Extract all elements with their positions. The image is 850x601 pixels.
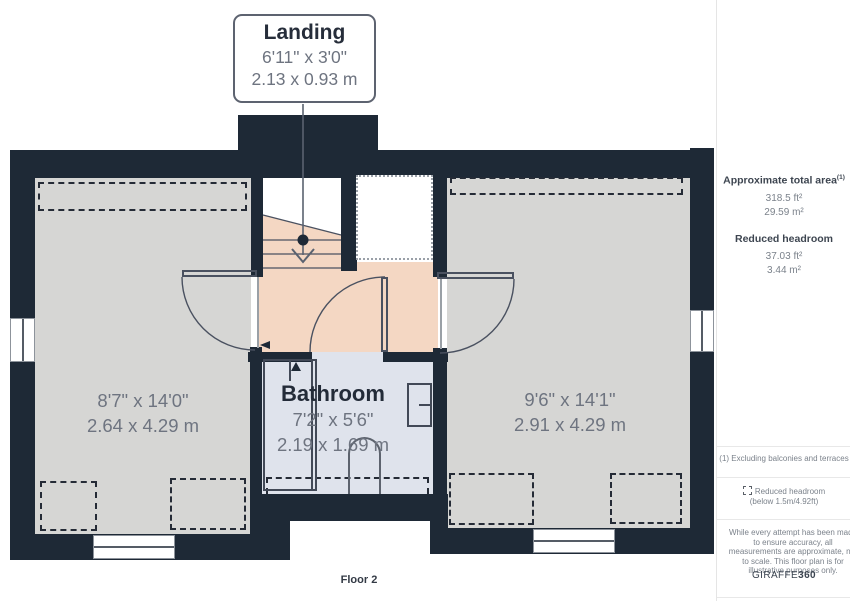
room-right-label: 9'6" x 14'1" 2.91 x 4.29 m [470, 387, 670, 437]
reduced-headroom-metric: 3.44 m² [717, 264, 850, 278]
sidebar-divider [717, 446, 850, 447]
landing-callout-title: Landing [235, 20, 374, 46]
info-sidebar: Approximate total area(1) 318.5 ft² 29.5… [716, 0, 850, 601]
bathroom-label: Bathroom 7'2" x 5'6" 2.19 x 1.69 m [238, 381, 428, 457]
footnote-text: (1) Excluding balconies and terraces [717, 454, 850, 464]
giraffe360-logo: GIRAFFE360 [717, 570, 850, 581]
door-arc-left-room [182, 277, 255, 350]
bathroom-metric: 2.19 x 1.69 m [238, 432, 428, 457]
reduced-headroom-title: Reduced headroom [717, 233, 850, 245]
door-swing-marker [291, 362, 301, 371]
total-area-label: Approximate total area [723, 175, 837, 187]
floorplan-page: Landing 6'11" x 3'0" 2.13 x 0.93 m 8'7" … [0, 0, 850, 601]
disclaimer-text: While every attempt has been made to ens… [717, 528, 850, 576]
sidebar-divider [717, 477, 850, 478]
floor-label: Floor 2 [284, 574, 434, 586]
landing-callout-metric: 2.13 x 0.93 m [235, 68, 374, 90]
total-area-section: Approximate total area(1) 318.5 ft² 29.5… [717, 174, 850, 278]
room-left-metric: 2.64 x 4.29 m [43, 413, 243, 438]
bathroom-name: Bathroom [238, 381, 428, 407]
sidebar-divider [717, 597, 850, 598]
room-right-imperial: 9'6" x 14'1" [470, 387, 670, 412]
door-swing-marker [260, 341, 270, 349]
brand-name: GIRAFFE [752, 570, 798, 581]
total-area-imperial: 318.5 ft² [717, 192, 850, 206]
reduced-headroom-imperial: 37.03 ft² [717, 250, 850, 264]
legend-reduced-headroom: Reduced headroom (below 1.5m/4.92ft) [717, 486, 850, 507]
brand-suffix: 360 [798, 570, 816, 581]
total-area-title: Approximate total area(1) [717, 174, 850, 187]
sidebar-divider [717, 519, 850, 520]
door-arc-bathroom [310, 277, 385, 352]
room-left-imperial: 8'7" x 14'0" [43, 388, 243, 413]
bathroom-imperial: 7'2" x 5'6" [238, 407, 428, 432]
landing-callout-imperial: 6'11" x 3'0" [235, 46, 374, 68]
total-area-footnote-marker: (1) [837, 174, 845, 181]
legend-sublabel: (below 1.5m/4.92ft) [717, 497, 850, 507]
dashed-square-icon [743, 486, 752, 495]
room-left-label: 8'7" x 14'0" 2.64 x 4.29 m [43, 388, 243, 438]
landing-callout: Landing 6'11" x 3'0" 2.13 x 0.93 m [233, 14, 376, 103]
door-arc-right-room [440, 279, 514, 353]
stair-direction-dot [298, 235, 309, 246]
room-right-metric: 2.91 x 4.29 m [470, 412, 670, 437]
total-area-metric: 29.59 m² [717, 206, 850, 220]
legend-label: Reduced headroom [755, 487, 825, 496]
